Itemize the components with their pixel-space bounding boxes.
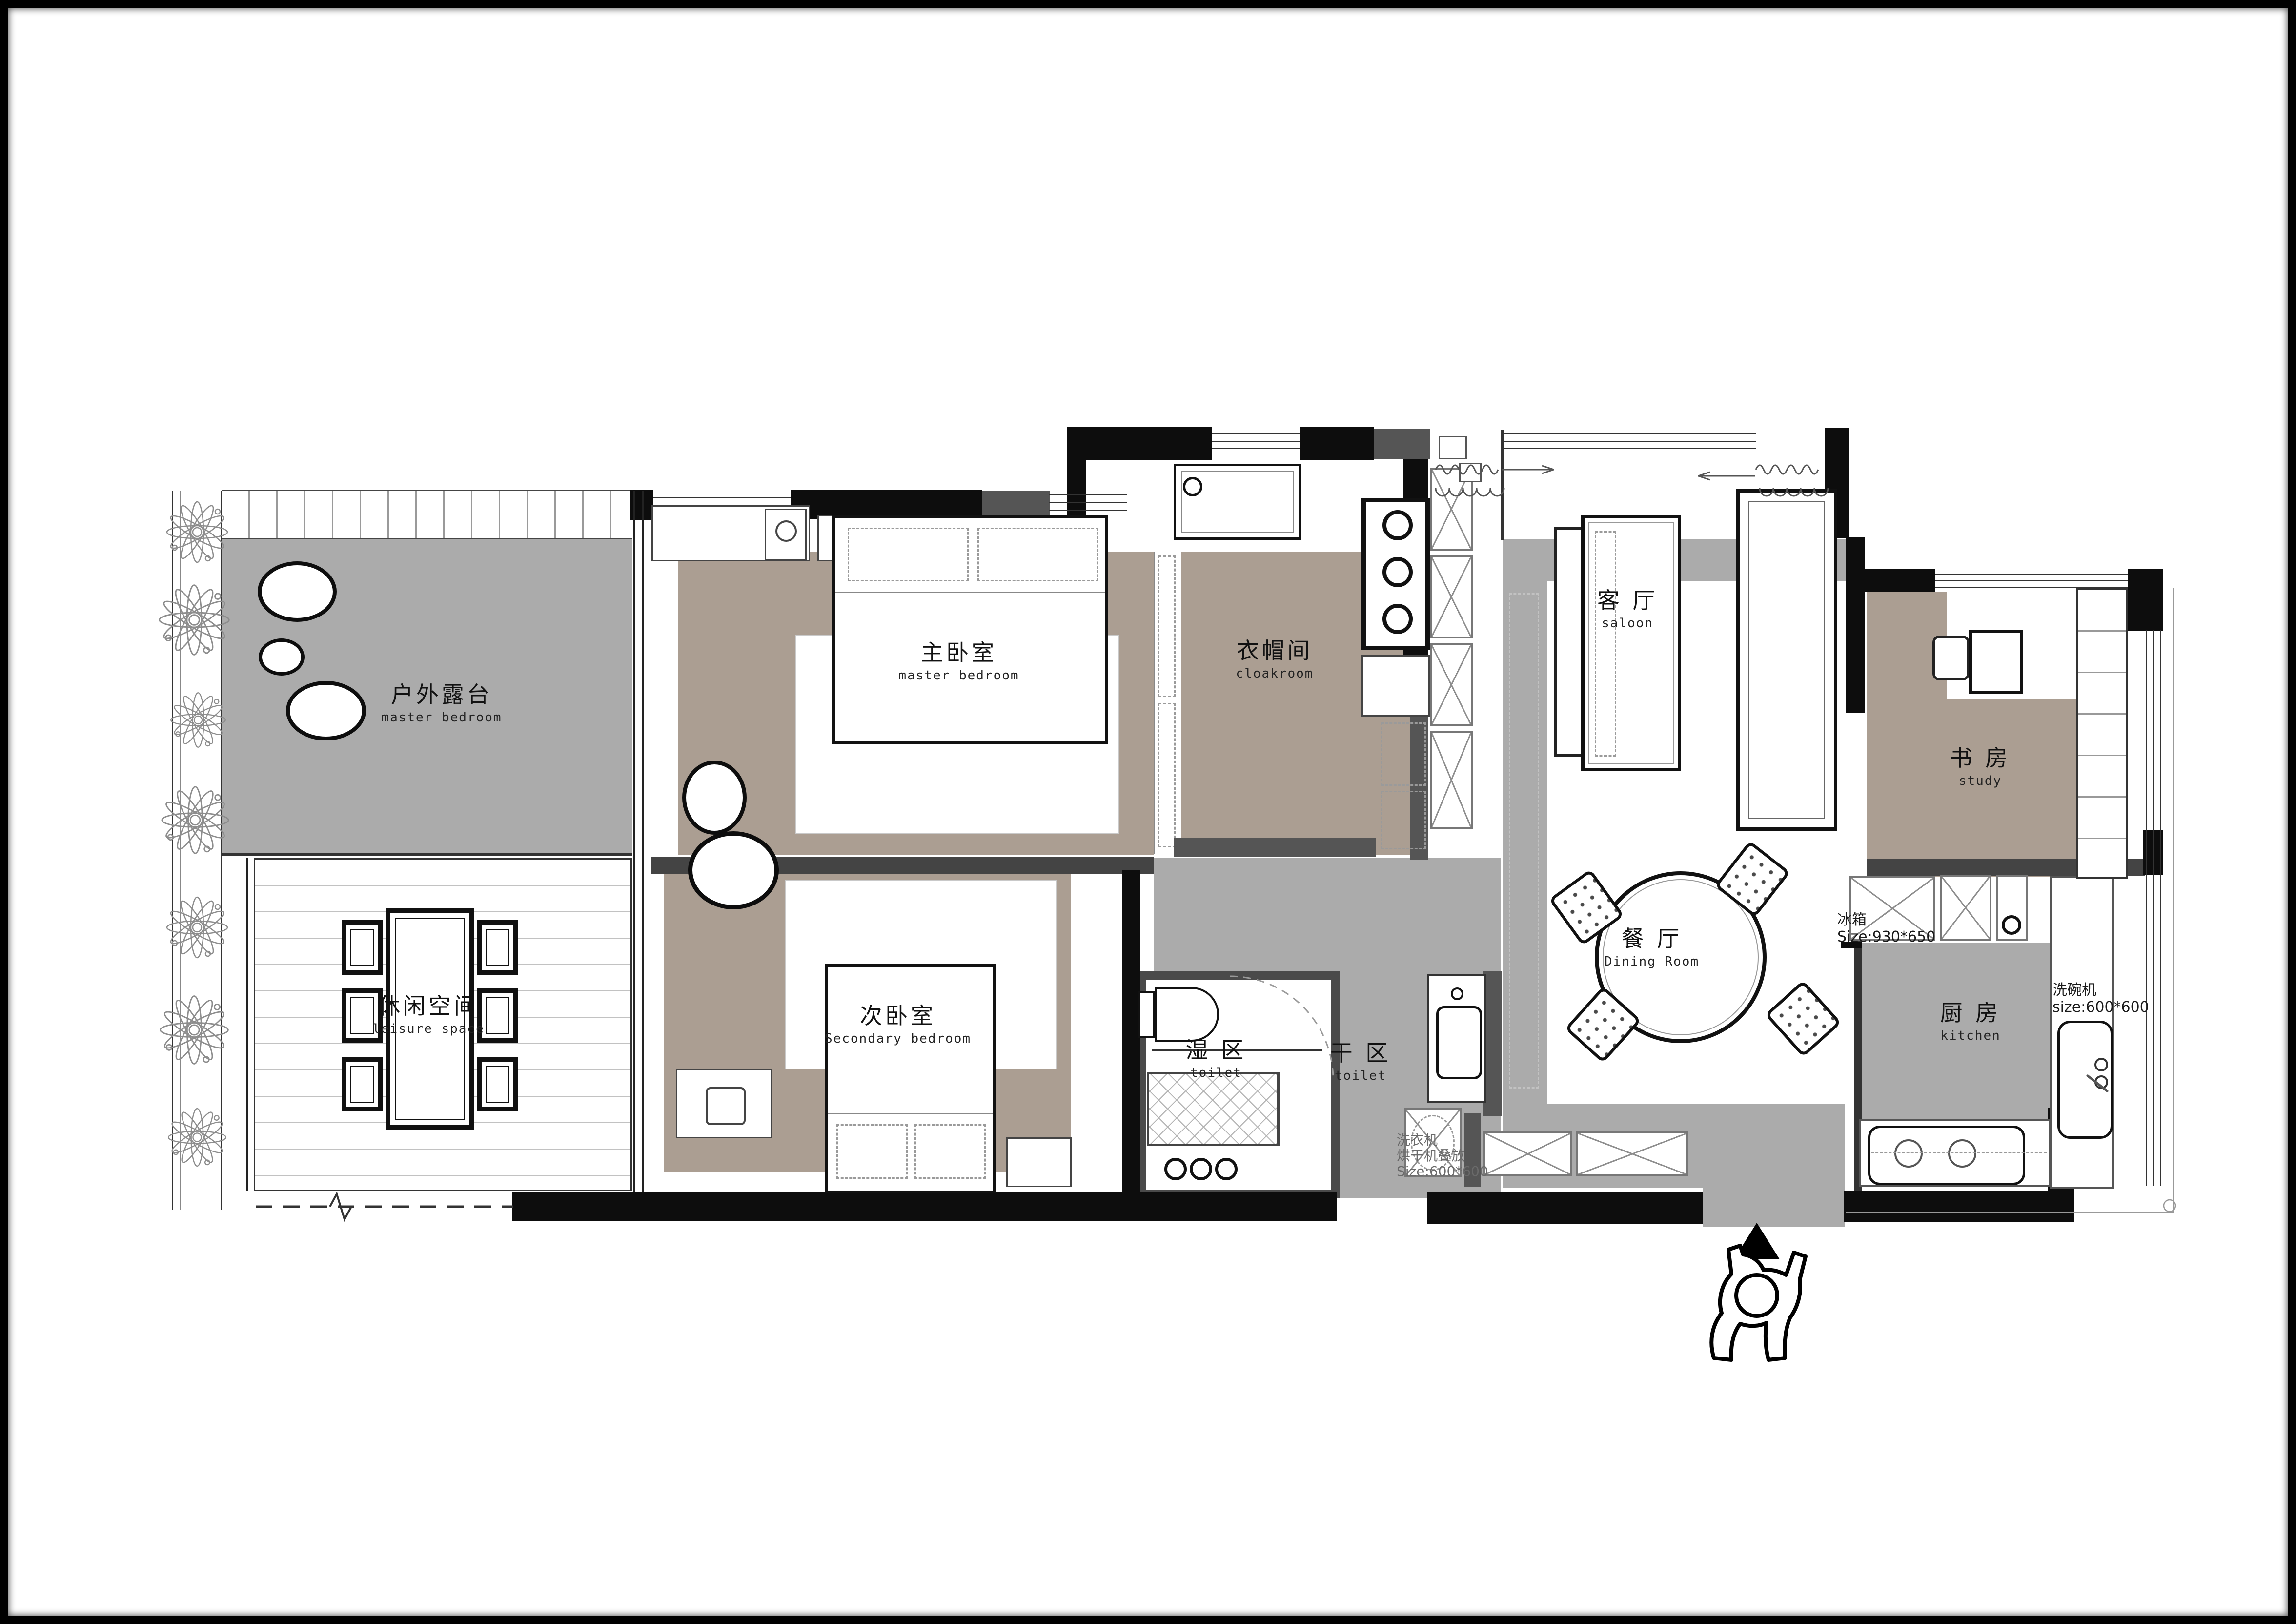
dishwasher-annotation-line: size:600*600 <box>2052 999 2149 1016</box>
foyer-box <box>1459 463 1482 482</box>
room-label-living: 客 厅 saloon <box>1597 588 1658 631</box>
window <box>1212 433 1300 434</box>
window <box>653 497 791 498</box>
boundary-dashed-line <box>256 1194 513 1219</box>
outer-frame-line <box>2173 588 2174 1213</box>
secondary-desk <box>676 1069 772 1138</box>
storage-cabinet <box>1430 643 1473 726</box>
outer-frame-line <box>1846 1212 2174 1213</box>
window <box>1212 448 1300 449</box>
study-desk <box>1969 630 2023 694</box>
secondary-bed <box>825 964 996 1193</box>
person-icon <box>1711 1246 1806 1360</box>
window <box>1049 494 1127 495</box>
wall-line <box>246 858 248 1191</box>
wardrobe-dashed <box>1158 703 1176 847</box>
wall-bottom <box>512 1192 1337 1221</box>
room-label-en: toilet <box>1330 1069 1391 1083</box>
master-pouf <box>688 831 779 909</box>
room-label-wet: 湿 区 toilet <box>1186 1038 1247 1080</box>
room-label-dining: 餐 厅 Dining Room <box>1605 926 1699 969</box>
hall-cabinet <box>1483 1131 1572 1176</box>
room-label-en: leisure space <box>372 1022 485 1036</box>
entry-arrow-icon <box>1734 1223 1780 1259</box>
leisure-chair <box>477 1057 518 1111</box>
sofa <box>1736 489 1837 831</box>
terrace-deck-strip <box>222 490 632 539</box>
entry-floor <box>1703 1186 1845 1227</box>
wall <box>1067 427 1212 460</box>
wall <box>791 490 982 519</box>
storage-cabinet <box>1430 555 1473 638</box>
wall <box>1846 537 1865 713</box>
toilet-bowl <box>1155 987 1219 1042</box>
foyer-box <box>1439 436 1467 459</box>
room-label-cn: 主卧室 <box>898 640 1019 665</box>
dishwasher-annotation: 洗碗机 size:600*600 <box>2052 982 2149 1016</box>
storage-cabinet <box>1430 731 1473 829</box>
window-right <box>2146 630 2147 1186</box>
master-dresser <box>651 505 810 561</box>
hallway-floor <box>1154 858 1501 982</box>
washer-annotation: 洗衣机 烘干机叠放 Size:600*600 <box>1397 1132 1488 1180</box>
washer-annotation-line: 烘干机叠放 <box>1397 1148 1488 1164</box>
floor-plan-canvas: 户外露台 master bedroom 休闲空间 leisure space 主… <box>0 0 2296 1624</box>
room-label-cn: 休闲空间 <box>372 994 485 1019</box>
room-label-cn: 衣帽间 <box>1236 638 1314 663</box>
window <box>1212 441 1300 442</box>
wet-fixture <box>1215 1158 1238 1180</box>
dishwasher-annotation-line: 洗碗机 <box>2052 982 2149 999</box>
room-label-cn: 湿 区 <box>1186 1038 1247 1063</box>
kitchen-cabinet <box>1940 875 1991 941</box>
room-label-study: 书 房 study <box>1950 746 2011 788</box>
wall-dark <box>1174 838 1376 857</box>
washer-annotation-line: Size:600*600 <box>1397 1164 1488 1179</box>
room-label-cloakroom: 衣帽间 cloakroom <box>1236 638 1314 681</box>
fridge-annotation-line: Size:930*650 <box>1837 929 1935 946</box>
shower-floor <box>1147 1072 1280 1146</box>
wet-fixture <box>1164 1158 1187 1180</box>
wall-bottom <box>1427 1192 1703 1224</box>
room-label-en: cloakroom <box>1236 666 1314 681</box>
room-label-master: 主卧室 master bedroom <box>898 640 1019 683</box>
leisure-chair <box>477 920 518 975</box>
wardrobe-dashed <box>1158 555 1176 697</box>
living-band-dashed <box>1509 593 1539 1089</box>
room-label-kitchen: 厨 房 kitchen <box>1940 1001 2001 1043</box>
room-label-cn: 次卧室 <box>825 1004 971 1028</box>
window-right <box>2153 630 2154 1186</box>
plant-icons <box>160 502 229 1166</box>
cloakroom-bay-cabinet <box>1174 464 1301 540</box>
frame-detail <box>2164 1200 2175 1212</box>
window-right <box>2160 630 2161 1186</box>
toilet-tank <box>1138 991 1155 1038</box>
kitchen-unit <box>1996 875 2028 941</box>
terrace-stone <box>259 638 305 676</box>
terrace-stone <box>258 561 337 622</box>
wall-line <box>633 491 635 1192</box>
room-label-en: Dining Room <box>1605 954 1699 969</box>
room-label-en: study <box>1950 774 2011 788</box>
kitchen-counter-bottom <box>1859 1119 2051 1187</box>
room-label-cn: 干 区 <box>1330 1041 1391 1066</box>
window <box>1935 574 2128 575</box>
room-label-en: saloon <box>1597 616 1658 631</box>
master-pouf <box>682 761 747 835</box>
wall-corner <box>2128 569 2163 631</box>
kitchen-counter-right <box>2050 876 2114 1189</box>
window <box>1935 580 2128 581</box>
wall <box>1067 430 1086 518</box>
wall <box>1300 427 1374 460</box>
room-label-cn: 餐 厅 <box>1605 926 1699 951</box>
master-wardrobe-strip <box>1154 552 1183 854</box>
room-label-en: toilet <box>1186 1066 1247 1080</box>
window <box>1504 433 1756 434</box>
plant-strip-border <box>180 491 181 1210</box>
room-label-cn: 书 房 <box>1950 746 2011 771</box>
utility-cabinet <box>1361 498 1430 650</box>
room-label-en: kitchen <box>1940 1028 2001 1043</box>
study-chair <box>1932 636 1970 680</box>
terrace-stone <box>286 681 366 740</box>
room-label-en: Secondary bedroom <box>825 1031 971 1046</box>
plant-strip-border <box>221 491 222 1210</box>
room-label-cn: 客 厅 <box>1597 588 1658 613</box>
room-label-secondary: 次卧室 Secondary bedroom <box>825 1004 971 1046</box>
room-label-cn: 厨 房 <box>1940 1001 2001 1026</box>
study-bookshelf <box>2076 588 2128 879</box>
window <box>1049 502 1127 503</box>
terrace-leisure-divider <box>222 853 632 856</box>
plant-strip-border <box>172 491 173 1210</box>
wall <box>1865 569 1935 592</box>
wall <box>1122 870 1140 1200</box>
room-label-terrace: 户外露台 master bedroom <box>381 682 502 725</box>
room-label-en: master bedroom <box>898 668 1019 683</box>
leisure-chair <box>342 1057 383 1111</box>
living-side-table <box>1554 527 1584 757</box>
cloakroom-wardrobe-dashed <box>1381 791 1426 849</box>
secondary-nightstand <box>1006 1137 1072 1187</box>
room-label-leisure: 休闲空间 leisure space <box>372 994 485 1036</box>
wall-line <box>1501 430 1504 540</box>
room-label-en: master bedroom <box>381 710 502 725</box>
wet-fixture <box>1190 1158 1212 1180</box>
wall-dark <box>1374 429 1430 459</box>
window <box>1504 448 1756 449</box>
fridge-annotation: 冰箱 Size:930*650 <box>1837 912 1935 946</box>
wall-line <box>642 491 644 1192</box>
hall-cabinet <box>1576 1131 1688 1176</box>
room-label-dry: 干 区 toilet <box>1330 1041 1391 1083</box>
window <box>1504 441 1756 442</box>
master-bed <box>832 515 1108 744</box>
vanity-counter <box>1427 974 1486 1103</box>
fridge-annotation-line: 冰箱 <box>1837 912 1935 929</box>
washer-annotation-line: 洗衣机 <box>1397 1132 1488 1148</box>
cabinet <box>1361 655 1430 717</box>
living-dashed-runner <box>1595 531 1616 757</box>
wall-dark <box>1483 971 1502 1116</box>
cloakroom-wardrobe-dashed <box>1381 722 1426 786</box>
leisure-chair <box>342 920 383 975</box>
window <box>1049 510 1127 511</box>
room-label-cn: 户外露台 <box>381 682 502 707</box>
wall-bottom <box>1844 1191 2074 1222</box>
